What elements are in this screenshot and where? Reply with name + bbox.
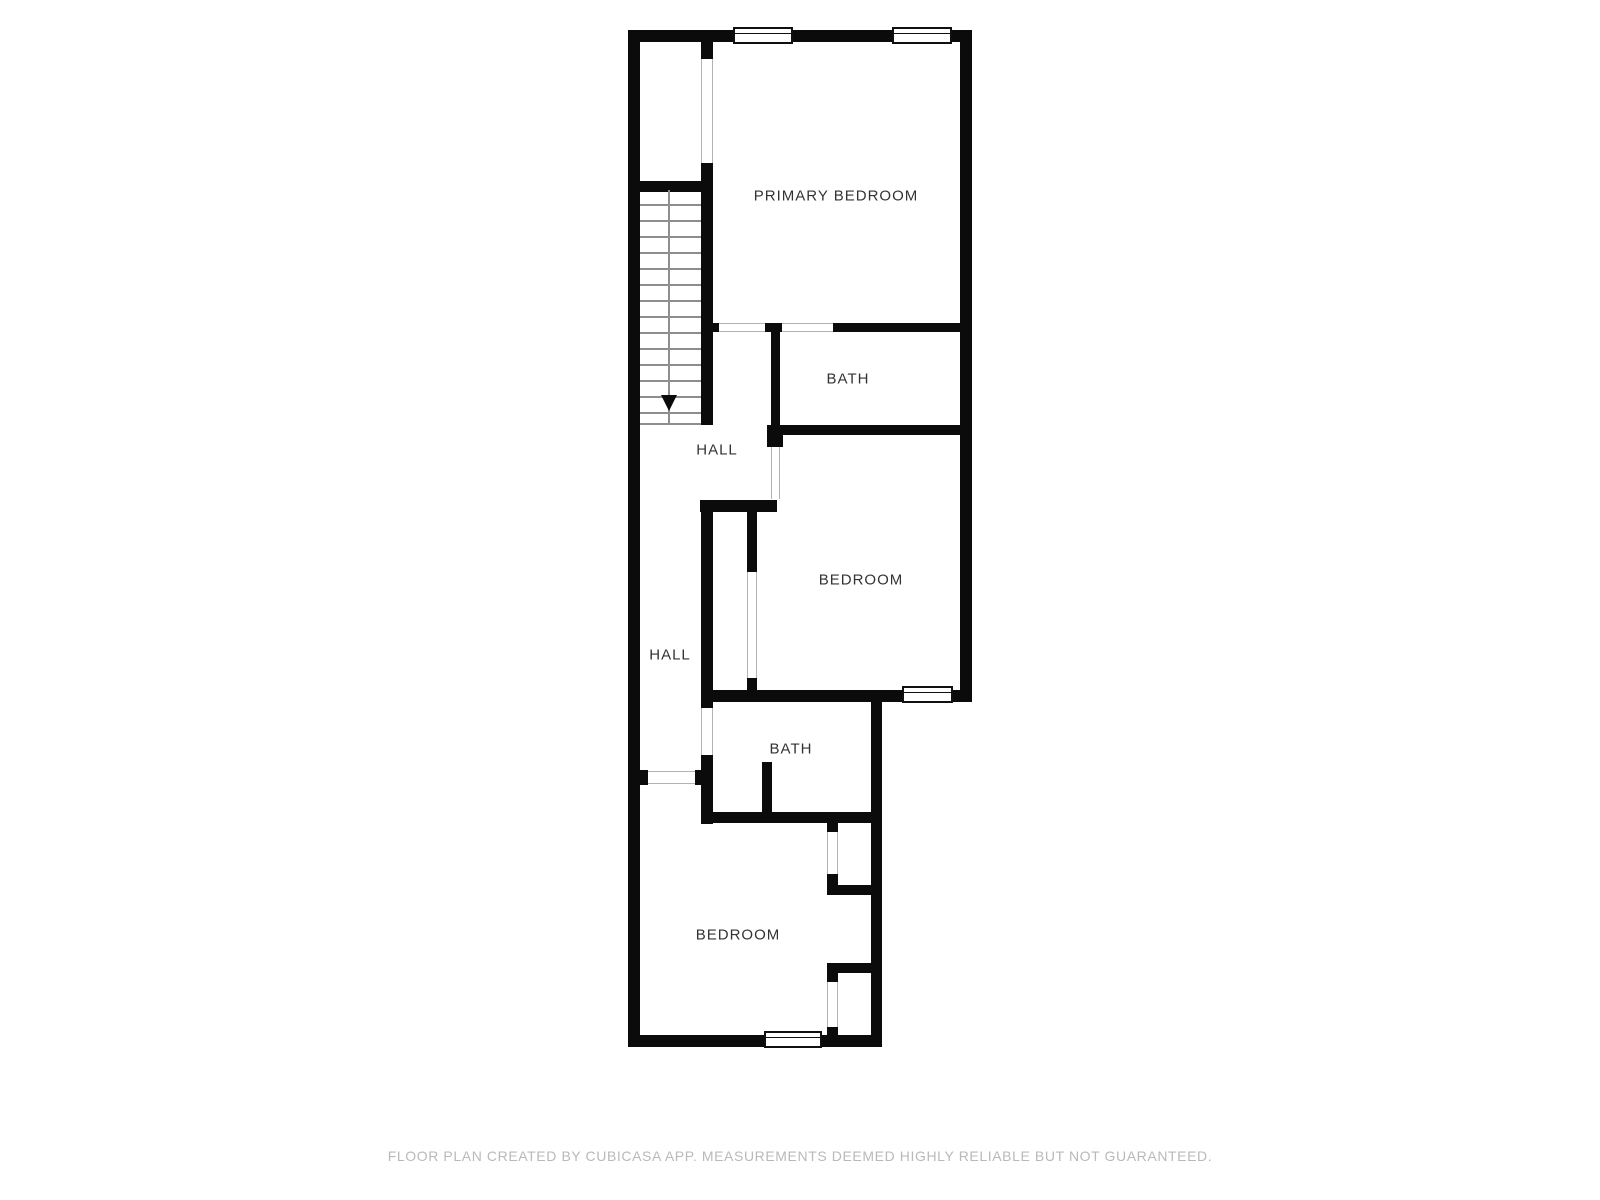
stair-tread <box>640 236 701 238</box>
wall-bottom-left-segment <box>628 1035 764 1047</box>
wall-left-exterior <box>628 30 640 1047</box>
wall-hall-top-doorpost <box>765 323 782 332</box>
wall-nook1-bottom <box>827 885 882 895</box>
window-top-left <box>733 27 793 44</box>
stairs-bottom-edge <box>640 423 701 425</box>
door-opening-closet <box>747 572 757 678</box>
window-bedroom-middle <box>902 686 953 703</box>
room-label-bath-lower: BATH <box>770 741 813 758</box>
room-label-primary-bedroom: PRIMARY BEDROOM <box>754 188 918 205</box>
room-label-bedroom-lower: BEDROOM <box>696 927 781 944</box>
door-opening-primary-bedroom-bath <box>782 323 833 332</box>
wall-bath-lower-bottom <box>701 812 882 823</box>
wall-hall-mid-horizontal <box>700 500 777 512</box>
window-bedroom-lower <box>764 1031 822 1048</box>
stair-tread <box>640 268 701 270</box>
room-label-hall-upper: HALL <box>696 442 738 459</box>
wall-bath-upper-left <box>771 332 780 425</box>
door-opening-hall-bedroom-middle <box>771 447 780 499</box>
wall-closet-left <box>701 512 713 702</box>
door-opening-bath-lower <box>701 708 713 755</box>
stair-tread <box>640 284 701 286</box>
wall-stair-divider-main <box>701 163 713 425</box>
stairs <box>640 190 701 425</box>
wall-nook2-top <box>827 963 882 973</box>
wall-bath-upper-bottom <box>767 425 960 435</box>
wall-nook1-bottom-cap <box>827 874 838 885</box>
door-opening-stair-primary-bedroom <box>701 59 713 163</box>
stair-tread <box>640 220 701 222</box>
wall-right-exterior-upper <box>960 30 972 702</box>
wall-stair-divider-upper <box>701 42 713 60</box>
room-label-hall-lower: HALL <box>649 647 691 664</box>
wall-top-mid-segment <box>793 30 892 42</box>
wall-primary-bedroom-bottom <box>833 323 960 332</box>
stair-tread <box>640 332 701 334</box>
stair-tread <box>640 380 701 382</box>
floor-plan-canvas: PRIMARY BEDROOM BATH HALL BEDROOM HALL B… <box>0 0 1600 1200</box>
wall-bath-lower-stub <box>762 762 772 814</box>
stair-tread <box>640 364 701 366</box>
stair-tread <box>640 316 701 318</box>
footer-disclaimer: FLOOR PLAN CREATED BY CUBICASA APP. MEAS… <box>0 1148 1600 1164</box>
door-opening-nook1 <box>827 832 838 874</box>
wall-nook2-bottom-cap <box>827 1027 838 1037</box>
stairs-down-arrow-icon <box>661 395 677 411</box>
wall-hall-bottom-stub-right <box>695 770 713 785</box>
stairs-center-rail <box>668 190 670 425</box>
wall-bedroom-middle-bottom-corner <box>952 690 972 702</box>
wall-top-left-segment <box>628 30 733 42</box>
room-label-bath-upper: BATH <box>827 371 870 388</box>
wall-nook1-top-cap <box>827 823 838 832</box>
door-opening-hall-primary-bedroom <box>719 323 765 332</box>
door-opening-hall-bedroom-lower <box>648 771 695 784</box>
window-top-right <box>892 27 952 44</box>
wall-closet-right-upper <box>747 512 757 572</box>
room-label-bedroom-middle: BEDROOM <box>819 572 904 589</box>
wall-nook2-top-cap <box>827 973 838 982</box>
stair-tread <box>640 348 701 350</box>
stair-tread <box>640 300 701 302</box>
stair-tread <box>640 252 701 254</box>
stair-tread <box>640 204 701 206</box>
wall-right-exterior-lower <box>871 690 882 1047</box>
door-opening-nook2 <box>827 982 838 1027</box>
stair-tread <box>640 412 701 414</box>
wall-hall-bottom-stub-left <box>640 770 648 785</box>
wall-bedroom-middle-bottom <box>701 690 902 702</box>
